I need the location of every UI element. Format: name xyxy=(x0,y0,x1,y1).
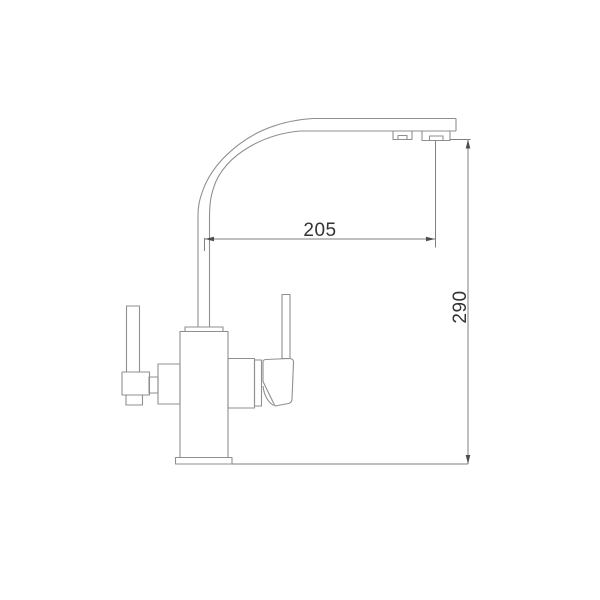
aerator-left-notch xyxy=(398,136,407,140)
left-handle-connector xyxy=(149,377,158,393)
dim-h-arrow-right xyxy=(426,237,435,242)
right-handle-cap xyxy=(255,360,262,406)
dim-label-spout-reach: 205 xyxy=(303,220,336,241)
faucet-outline xyxy=(122,119,468,465)
base-flange xyxy=(176,458,233,465)
dim-v-arrow-bottom xyxy=(466,455,471,464)
dimension-spout-reach: 205 xyxy=(205,141,436,251)
dim-v-arrow-top xyxy=(466,140,471,149)
left-valve-block xyxy=(158,364,180,404)
drawing-canvas: 205 290 xyxy=(0,0,600,600)
right-handle xyxy=(228,295,294,409)
aerator-right-notch xyxy=(430,136,444,141)
left-handle xyxy=(122,306,180,405)
faucet-body xyxy=(180,332,228,458)
left-handle-lever xyxy=(127,306,140,372)
right-handle-stick xyxy=(282,295,290,359)
dim-label-height: 290 xyxy=(450,290,471,323)
right-valve-arm xyxy=(228,359,255,409)
right-handle-fillet xyxy=(263,386,274,406)
left-handle-block xyxy=(122,372,150,395)
neck-collar xyxy=(185,327,223,332)
dimension-height: 290 xyxy=(450,140,472,465)
faucet-technical-drawing: 205 290 xyxy=(0,0,600,600)
left-handle-foot xyxy=(126,395,143,405)
